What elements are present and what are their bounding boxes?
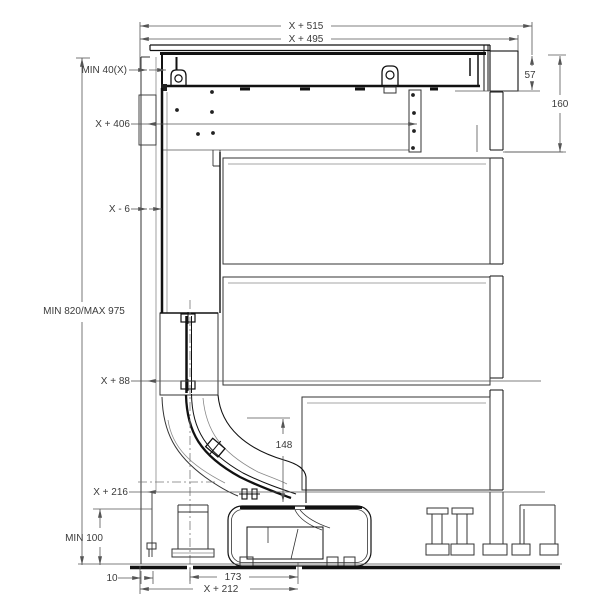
worktop: [150, 45, 490, 91]
dim-label-min40: MIN 40(X): [81, 65, 127, 76]
dim-label-x495: X + 495: [289, 34, 324, 45]
dim-label-x515: X + 515: [289, 21, 324, 32]
dim-label-148: 148: [276, 440, 293, 451]
hob: [160, 53, 486, 93]
dim-label-xm6: X - 6: [109, 204, 131, 215]
screw-dots: [175, 90, 416, 150]
installation-drawing-page: X + 515 X + 495 MIN 40(X) 57 160 X + 406…: [0, 0, 615, 615]
base-line: [78, 564, 562, 568]
duct-clamp-diagonal: [204, 436, 227, 459]
blower-unit: [228, 506, 371, 566]
dim-label-173: 173: [225, 572, 242, 583]
dim-label-x88: X + 88: [101, 376, 131, 387]
dim-label-160: 160: [552, 99, 569, 110]
installation-drawing: X + 515 X + 495 MIN 40(X) 57 160 X + 406…: [0, 0, 615, 615]
drawer-boxes: [223, 158, 490, 490]
dim-label-x216: X + 216: [93, 487, 128, 498]
dim-label-x406: X + 406: [95, 119, 130, 130]
right-legs: [426, 492, 558, 555]
cabinet-left-panel: [139, 57, 156, 564]
dim-label-x212: X + 212: [204, 584, 239, 595]
dim-label-10: 10: [106, 573, 118, 584]
dim-label-min820: MIN 820/MAX 975: [43, 306, 125, 317]
cabinet-right-side: [455, 51, 563, 490]
mounting-plate: [163, 90, 421, 166]
plinth: [147, 492, 558, 566]
dim-label-min100: MIN 100: [65, 533, 103, 544]
dim-label-57: 57: [524, 70, 536, 81]
